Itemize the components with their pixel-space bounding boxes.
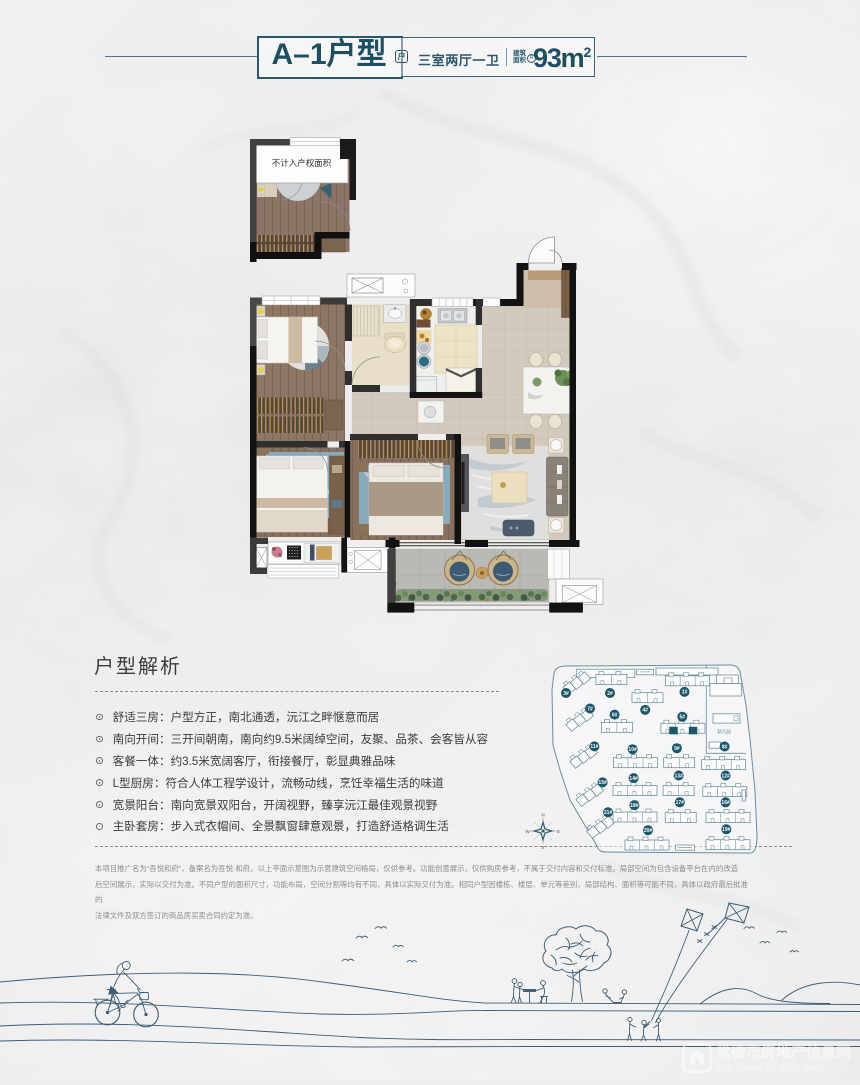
svg-text:17#: 17# — [676, 800, 685, 806]
svg-text:不计入产权面积: 不计入产权面积 — [272, 158, 332, 168]
svg-text:9#: 9# — [674, 746, 680, 752]
svg-text:21#: 21# — [604, 810, 613, 816]
svg-text:11#: 11# — [590, 744, 598, 750]
svg-text:18#: 18# — [630, 803, 639, 809]
svg-text:10#: 10# — [628, 747, 637, 753]
svg-text:19#: 19# — [722, 827, 731, 833]
svg-text:6#: 6# — [612, 712, 618, 718]
svg-text:14#: 14# — [629, 776, 638, 782]
svg-text:8#: 8# — [722, 744, 728, 750]
svg-text:15#: 15# — [598, 780, 607, 786]
svg-text:E: E — [557, 829, 560, 834]
svg-text:1#: 1# — [682, 690, 688, 696]
svg-text:4#: 4# — [642, 708, 648, 714]
svg-text:幼儿园: 幼儿园 — [717, 728, 731, 735]
svg-text:3#: 3# — [563, 691, 569, 697]
svg-text:7#: 7# — [587, 706, 593, 712]
svg-text:20#: 20# — [644, 828, 653, 834]
svg-text:16#: 16# — [721, 800, 730, 806]
svg-text:S: S — [541, 845, 544, 850]
svg-text:2#: 2# — [607, 691, 613, 697]
svg-text:12#: 12# — [721, 773, 730, 779]
svg-text:13#: 13# — [675, 773, 684, 779]
svg-text:W: W — [525, 829, 530, 834]
svg-text:5#: 5# — [680, 715, 686, 721]
svg-text:N: N — [541, 813, 544, 818]
